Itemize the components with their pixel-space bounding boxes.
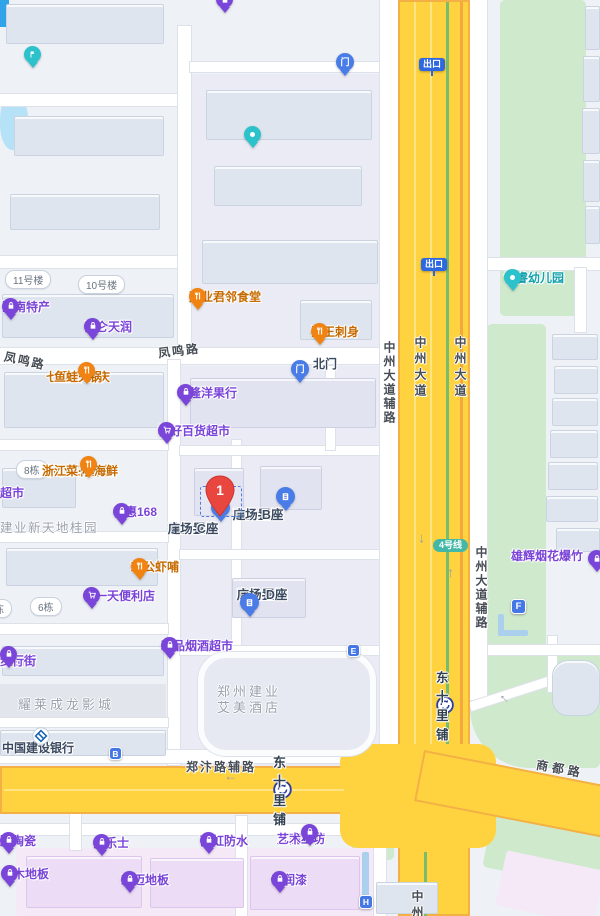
building (206, 90, 372, 140)
gate-glyph: 门 (340, 58, 349, 67)
metro-station-dongshilipu-south[interactable]: 东十里铺 (273, 780, 292, 799)
area-label-xintiandi[interactable]: 建业新天地桂园 (0, 517, 98, 536)
cart-pin-icon (158, 422, 175, 439)
building (552, 398, 598, 426)
building (585, 206, 600, 244)
pill-no6: 6栋 (30, 597, 62, 616)
gate-pin-icon[interactable]: 门 (336, 53, 354, 71)
building (6, 4, 164, 44)
kindergarten-pin-icon (504, 269, 521, 286)
cart-pin-icon (83, 587, 100, 604)
expressway-exit-sign[interactable]: 出口 (421, 258, 447, 271)
road-h-mid (0, 256, 180, 268)
pill-no10: 10号楼 (78, 275, 125, 294)
restaurant-pin-icon (131, 558, 148, 575)
building (582, 108, 600, 154)
gate-glyph: 门 (295, 365, 304, 374)
building (552, 334, 598, 360)
shop-pin-icon (0, 646, 17, 663)
poi-label: 雄辉烟花爆竹 (511, 547, 583, 564)
shop-pin-icon (301, 824, 318, 841)
dot-glyph (250, 132, 255, 137)
building (583, 56, 600, 102)
median-green (446, 2, 449, 744)
pill-partial: 栋 (0, 599, 12, 618)
building (585, 6, 600, 50)
road-h-left4 (0, 718, 168, 727)
building (214, 166, 362, 206)
building (14, 116, 164, 156)
selected-location-pin[interactable]: 1 (203, 474, 237, 518)
restaurant-pin-icon (189, 288, 206, 305)
flag-pin-icon[interactable] (24, 46, 41, 63)
road-h-top (0, 94, 180, 106)
shop-pin-icon (121, 871, 138, 888)
building-pin-icon-b[interactable] (276, 487, 295, 506)
footpath-h (362, 852, 369, 898)
poi-label-line2: 广场-C座 (168, 522, 219, 537)
road-market-h (0, 824, 384, 835)
marker-letter-b[interactable]: B (109, 747, 122, 760)
shop-pin-icon-top-clipped[interactable] (216, 0, 233, 8)
road-h-left3 (0, 624, 168, 634)
road-east-h (488, 645, 600, 655)
arrow-up-icon: ↑ (447, 564, 454, 580)
shop-pin-icon (1, 865, 18, 882)
road-label-zhongzhou-clipped: 中州 (409, 890, 426, 916)
poi-label: 北门 (313, 355, 337, 372)
map-canvas[interactable]: 凤鸣路 凤鸣路 中州大道 中州大道 中州大道辅路 中州大道辅路 郑汴路辅路 商都… (0, 0, 600, 916)
road-v-west (178, 26, 191, 356)
arrow-down-icon: ↑ (418, 532, 425, 548)
arrow-left-icon: ↑ (222, 775, 238, 782)
area-label-hotel[interactable]: 郑州建业 艾美酒店 (217, 684, 281, 717)
road-h-gate (190, 62, 390, 72)
shop-pin-icon (113, 503, 130, 520)
building (376, 882, 438, 914)
marker-letter-h[interactable]: H (359, 895, 373, 909)
metro-station-dongshilipu-north[interactable]: 东十里铺 (436, 696, 454, 714)
building (546, 496, 598, 522)
expressway-exit-sign[interactable]: 出口 (419, 58, 445, 71)
station-label: 东十里铺 (436, 667, 454, 743)
lane-line-bottom (4, 789, 344, 791)
pill-no11: 11号楼 (5, 270, 51, 289)
footpath-f2 (498, 614, 504, 636)
shop-pin-icon (271, 871, 288, 888)
road-label-zhengbian-aux: 郑汴路辅路 (186, 758, 256, 775)
road-label-zhongzhou-ave-1: 中州大道 (412, 336, 429, 400)
hotel-label-line2: 艾美酒店 (217, 700, 281, 716)
road-mall-h2 (180, 550, 388, 559)
station-label: 东十里铺 (273, 752, 292, 828)
building (202, 240, 378, 284)
building (10, 194, 160, 230)
building (583, 160, 600, 202)
poi-label: 超市 (0, 484, 24, 501)
shop-pin-icon (161, 637, 178, 654)
shop-pin-icon (84, 318, 101, 335)
marker-letter-e[interactable]: E (347, 644, 360, 657)
restaurant-pin-icon (78, 362, 95, 379)
building (548, 462, 598, 490)
shop-pin-icon (93, 834, 110, 851)
road-label-zhongzhou-aux-west: 中州大道辅路 (381, 341, 398, 425)
road-mall-h1 (180, 446, 388, 455)
shop-pin-icon (200, 832, 217, 849)
area-label-yaolai-cinema[interactable]: 耀莱成龙影城 (18, 694, 114, 713)
building (550, 430, 598, 458)
road-label-zhongzhou-aux-east: 中州大道辅路 (473, 546, 490, 630)
building (554, 366, 598, 394)
hotel-label-line1: 郑州建业 (217, 684, 281, 700)
lane-line-2 (430, 2, 432, 744)
restaurant-pin-icon (311, 323, 328, 340)
shop-pin-icon-clipped[interactable] (588, 550, 600, 567)
dot-glyph (510, 275, 515, 280)
shop-pin-icon (2, 298, 19, 315)
metro-line4-badge[interactable]: 4号线 (433, 539, 468, 552)
building-pin-icon-d[interactable] (240, 593, 259, 612)
north-gate-pin-icon[interactable]: 门 (291, 360, 309, 378)
road-market-v1 (70, 814, 81, 850)
road-h-left1 (0, 440, 168, 450)
road-label-zhongzhou-ave-2: 中州大道 (452, 336, 469, 400)
marker-letter-f[interactable]: F (511, 599, 526, 614)
selected-pin-number: 1 (216, 482, 224, 498)
building-round (552, 660, 600, 716)
shop-pin-icon (177, 384, 194, 401)
dot-pin-icon[interactable] (244, 126, 261, 143)
shop-pin-icon (0, 832, 17, 849)
restaurant-pin-icon (80, 456, 97, 473)
road-ne-v (575, 268, 586, 332)
